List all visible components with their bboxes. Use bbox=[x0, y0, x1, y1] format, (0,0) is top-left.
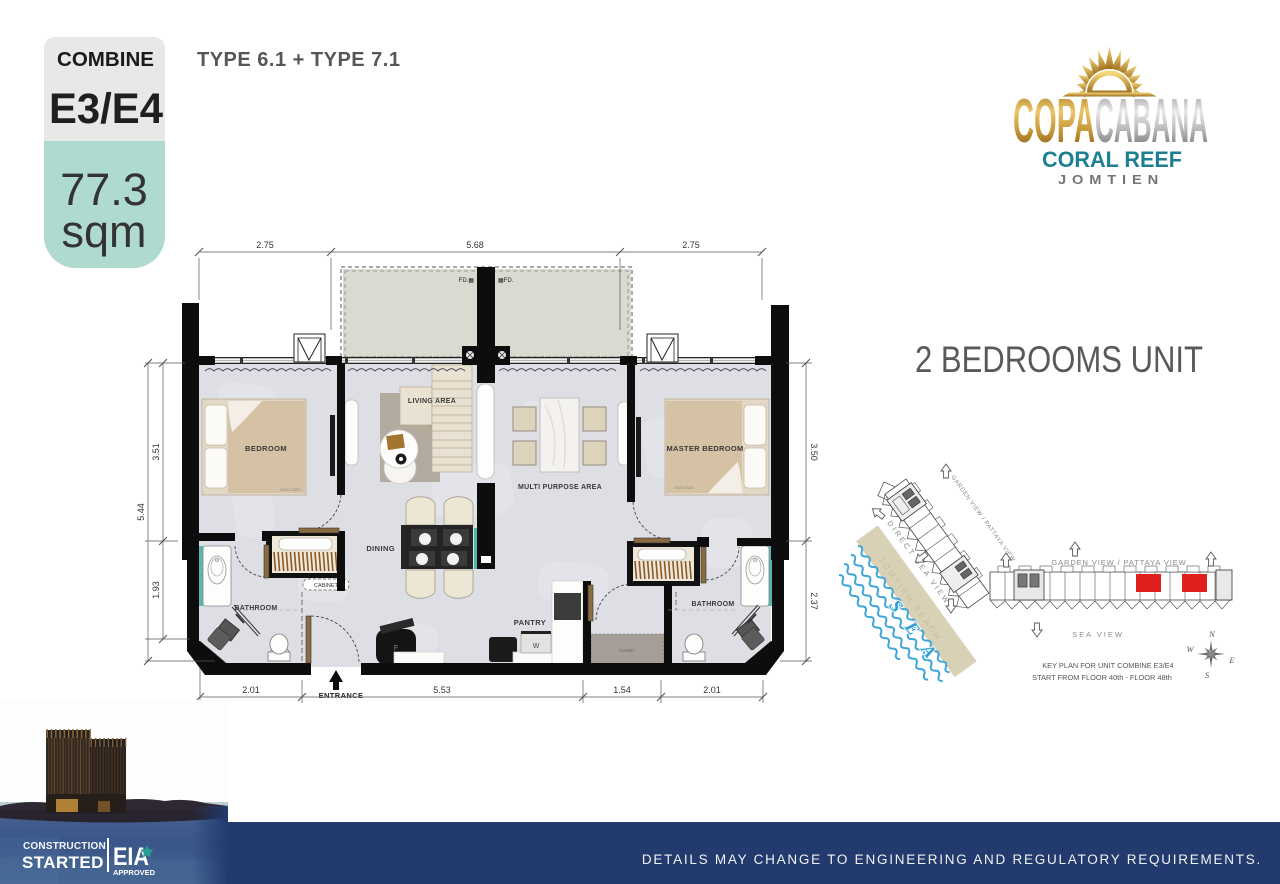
svg-text:1.54: 1.54 bbox=[613, 685, 631, 695]
svg-text:2.01: 2.01 bbox=[703, 685, 721, 695]
svg-text:DINING: DINING bbox=[366, 544, 395, 553]
svg-text:5.68: 5.68 bbox=[466, 240, 484, 250]
svg-text:JOMTIEN: JOMTIEN bbox=[1058, 173, 1164, 187]
svg-text:KING SIZE: KING SIZE bbox=[674, 485, 694, 490]
svg-text:BATHROOM: BATHROOM bbox=[234, 605, 277, 612]
svg-text:COPA: COPA bbox=[1013, 87, 1095, 156]
svg-text:3.51: 3.51 bbox=[151, 443, 161, 461]
svg-text:2.75: 2.75 bbox=[256, 240, 274, 250]
svg-text:FD.▦: FD.▦ bbox=[459, 278, 475, 284]
svg-text:CLOSET: CLOSET bbox=[619, 648, 636, 653]
svg-text:5.44: 5.44 bbox=[136, 503, 146, 521]
svg-text:sqm: sqm bbox=[61, 206, 146, 257]
svg-text:▦FD.: ▦FD. bbox=[498, 278, 514, 284]
svg-text:GARDEN VIEW / PATTAYA VIEW: GARDEN VIEW / PATTAYA VIEW bbox=[1051, 558, 1186, 567]
svg-text:STARTED: STARTED bbox=[22, 853, 104, 872]
svg-text:S: S bbox=[1205, 670, 1210, 680]
svg-text:CABANA: CABANA bbox=[1095, 87, 1208, 156]
svg-text:START FROM FLOOR 40th - FLOOR: START FROM FLOOR 40th - FLOOR 48th bbox=[1032, 673, 1172, 682]
svg-text:PANTRY: PANTRY bbox=[514, 618, 546, 627]
svg-text:CABINET: CABINET bbox=[314, 583, 338, 589]
svg-text:SEA VIEW: SEA VIEW bbox=[1072, 630, 1124, 639]
svg-text:2 BEDROOMS UNIT: 2 BEDROOMS UNIT bbox=[915, 339, 1203, 380]
svg-text:BATHROOM: BATHROOM bbox=[691, 601, 734, 608]
svg-text:1.93: 1.93 bbox=[151, 581, 161, 599]
svg-text:2.37: 2.37 bbox=[809, 592, 819, 610]
svg-text:KEY PLAN FOR UNIT COMBINE E3/E: KEY PLAN FOR UNIT COMBINE E3/E4 bbox=[1042, 661, 1174, 670]
svg-text:E: E bbox=[1228, 655, 1235, 665]
svg-text:KING SIZE: KING SIZE bbox=[280, 487, 300, 492]
svg-text:N: N bbox=[1208, 629, 1216, 639]
svg-text:APPROVED: APPROVED bbox=[113, 868, 156, 877]
svg-text:MASTER BEDROOM: MASTER BEDROOM bbox=[666, 444, 743, 453]
svg-text:MULTI PURPOSE AREA: MULTI PURPOSE AREA bbox=[518, 484, 602, 491]
svg-text:BEDROOM: BEDROOM bbox=[245, 444, 287, 453]
svg-text:LIVING AREA: LIVING AREA bbox=[408, 398, 456, 405]
svg-text:COMBINE: COMBINE bbox=[57, 49, 154, 71]
svg-text:W: W bbox=[533, 643, 540, 650]
svg-text:E3/E4: E3/E4 bbox=[49, 85, 163, 133]
svg-text:F: F bbox=[394, 645, 398, 652]
svg-text:CORAL REEF: CORAL REEF bbox=[1042, 147, 1182, 172]
svg-text:2.01: 2.01 bbox=[242, 685, 260, 695]
svg-text:TYPE 6.1 + TYPE 7.1: TYPE 6.1 + TYPE 7.1 bbox=[197, 49, 400, 71]
svg-text:CONSTRUCTION: CONSTRUCTION bbox=[23, 841, 106, 852]
svg-text:3.50: 3.50 bbox=[809, 443, 819, 461]
svg-text:DETAILS MAY CHANGE TO ENGINEER: DETAILS MAY CHANGE TO ENGINEERING AND RE… bbox=[642, 852, 1262, 867]
svg-text:W: W bbox=[1186, 644, 1194, 654]
svg-text:ENTRANCE: ENTRANCE bbox=[319, 691, 364, 700]
svg-text:GARDEN VIEW / PATTAYA VIEW: GARDEN VIEW / PATTAYA VIEW bbox=[949, 475, 1016, 564]
svg-text:2.75: 2.75 bbox=[682, 240, 700, 250]
svg-text:5.53: 5.53 bbox=[433, 685, 451, 695]
